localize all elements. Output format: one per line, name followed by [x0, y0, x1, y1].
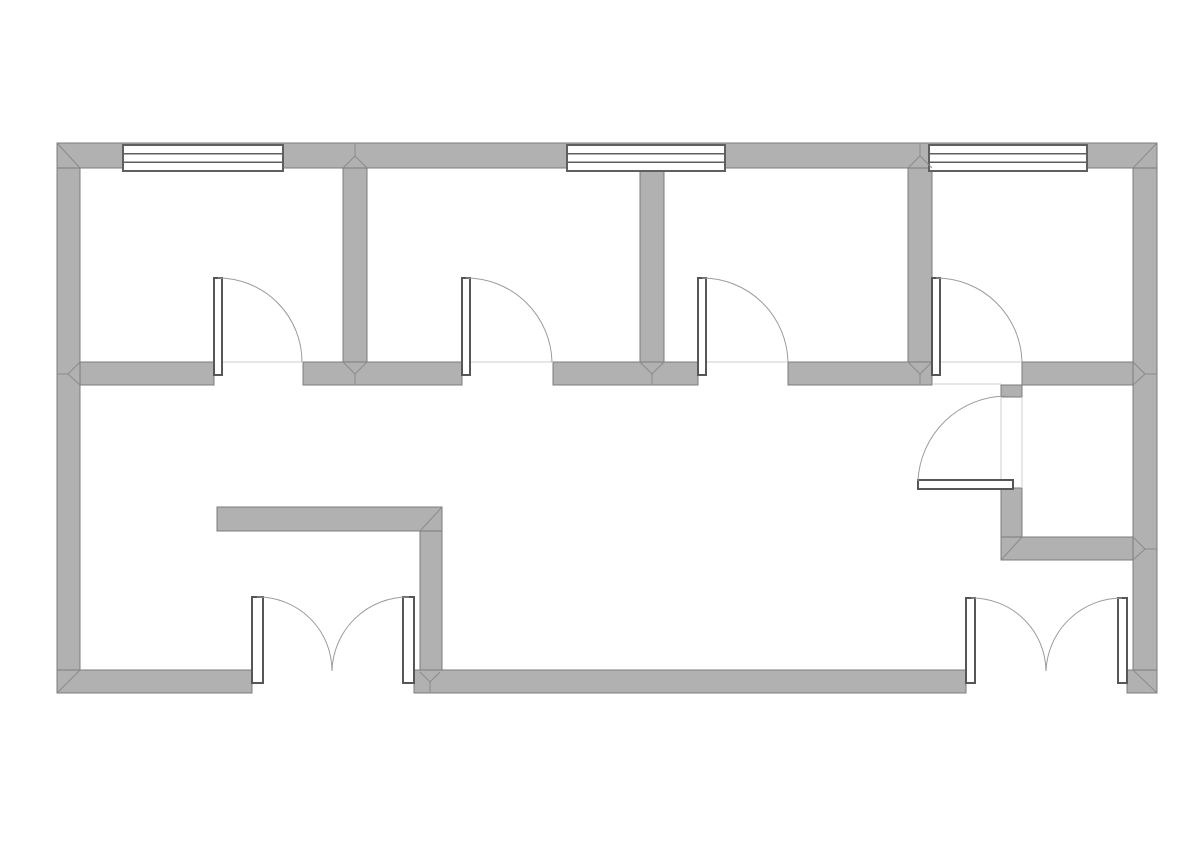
corridor-wall-segment-5 — [1022, 362, 1133, 385]
entry-right-door-leaf — [403, 597, 414, 683]
corridor-wall-segment-2 — [303, 362, 462, 385]
room3-door-swing — [702, 278, 788, 362]
bottom-exterior-wall-right — [1127, 670, 1157, 693]
corridor-wall-segment-4 — [788, 362, 932, 385]
entry2-left-door-leaf — [966, 598, 975, 683]
entry-left-door-swing — [257, 597, 332, 671]
window-1 — [123, 145, 283, 171]
entry2-right-door-swing — [1046, 598, 1122, 671]
entry2-right-door-leaf — [1118, 598, 1127, 683]
vestibule-wall-horizontal — [217, 507, 442, 531]
closet-left-wall-stub — [1001, 385, 1022, 397]
room4-door-swing — [936, 278, 1022, 362]
room1-door-leaf — [214, 278, 222, 375]
closet-bottom-wall — [1001, 537, 1133, 560]
corridor-wall-segment-1 — [80, 362, 214, 385]
floor-plan-canvas — [0, 0, 1191, 842]
divider-wall-room3-room4 — [908, 168, 932, 362]
divider-wall-room2-room3 — [640, 168, 664, 362]
corridor-wall-segment-3 — [553, 362, 698, 385]
divider-wall-room1-room2 — [343, 168, 367, 362]
entry-left-door-leaf — [252, 597, 263, 683]
bottom-exterior-wall-left — [57, 670, 252, 693]
room2-door-swing — [466, 278, 552, 362]
window-2 — [567, 145, 725, 171]
left-exterior-wall — [57, 143, 80, 693]
right-exterior-wall — [1133, 143, 1157, 693]
floor-plan-page: N S — [0, 0, 1191, 842]
room3-door-leaf — [698, 278, 706, 375]
window-3 — [929, 145, 1087, 171]
room2-door-leaf — [462, 278, 470, 375]
entry-right-door-swing — [332, 597, 409, 671]
closet-door-swing — [918, 396, 1006, 481]
vestibule-wall-vertical — [420, 531, 442, 672]
room4-door-leaf — [932, 278, 940, 375]
bottom-exterior-wall-middle — [414, 670, 966, 693]
room1-door-swing — [218, 278, 302, 362]
entry2-left-door-swing — [971, 598, 1046, 671]
closet-door-leaf — [918, 480, 1013, 489]
